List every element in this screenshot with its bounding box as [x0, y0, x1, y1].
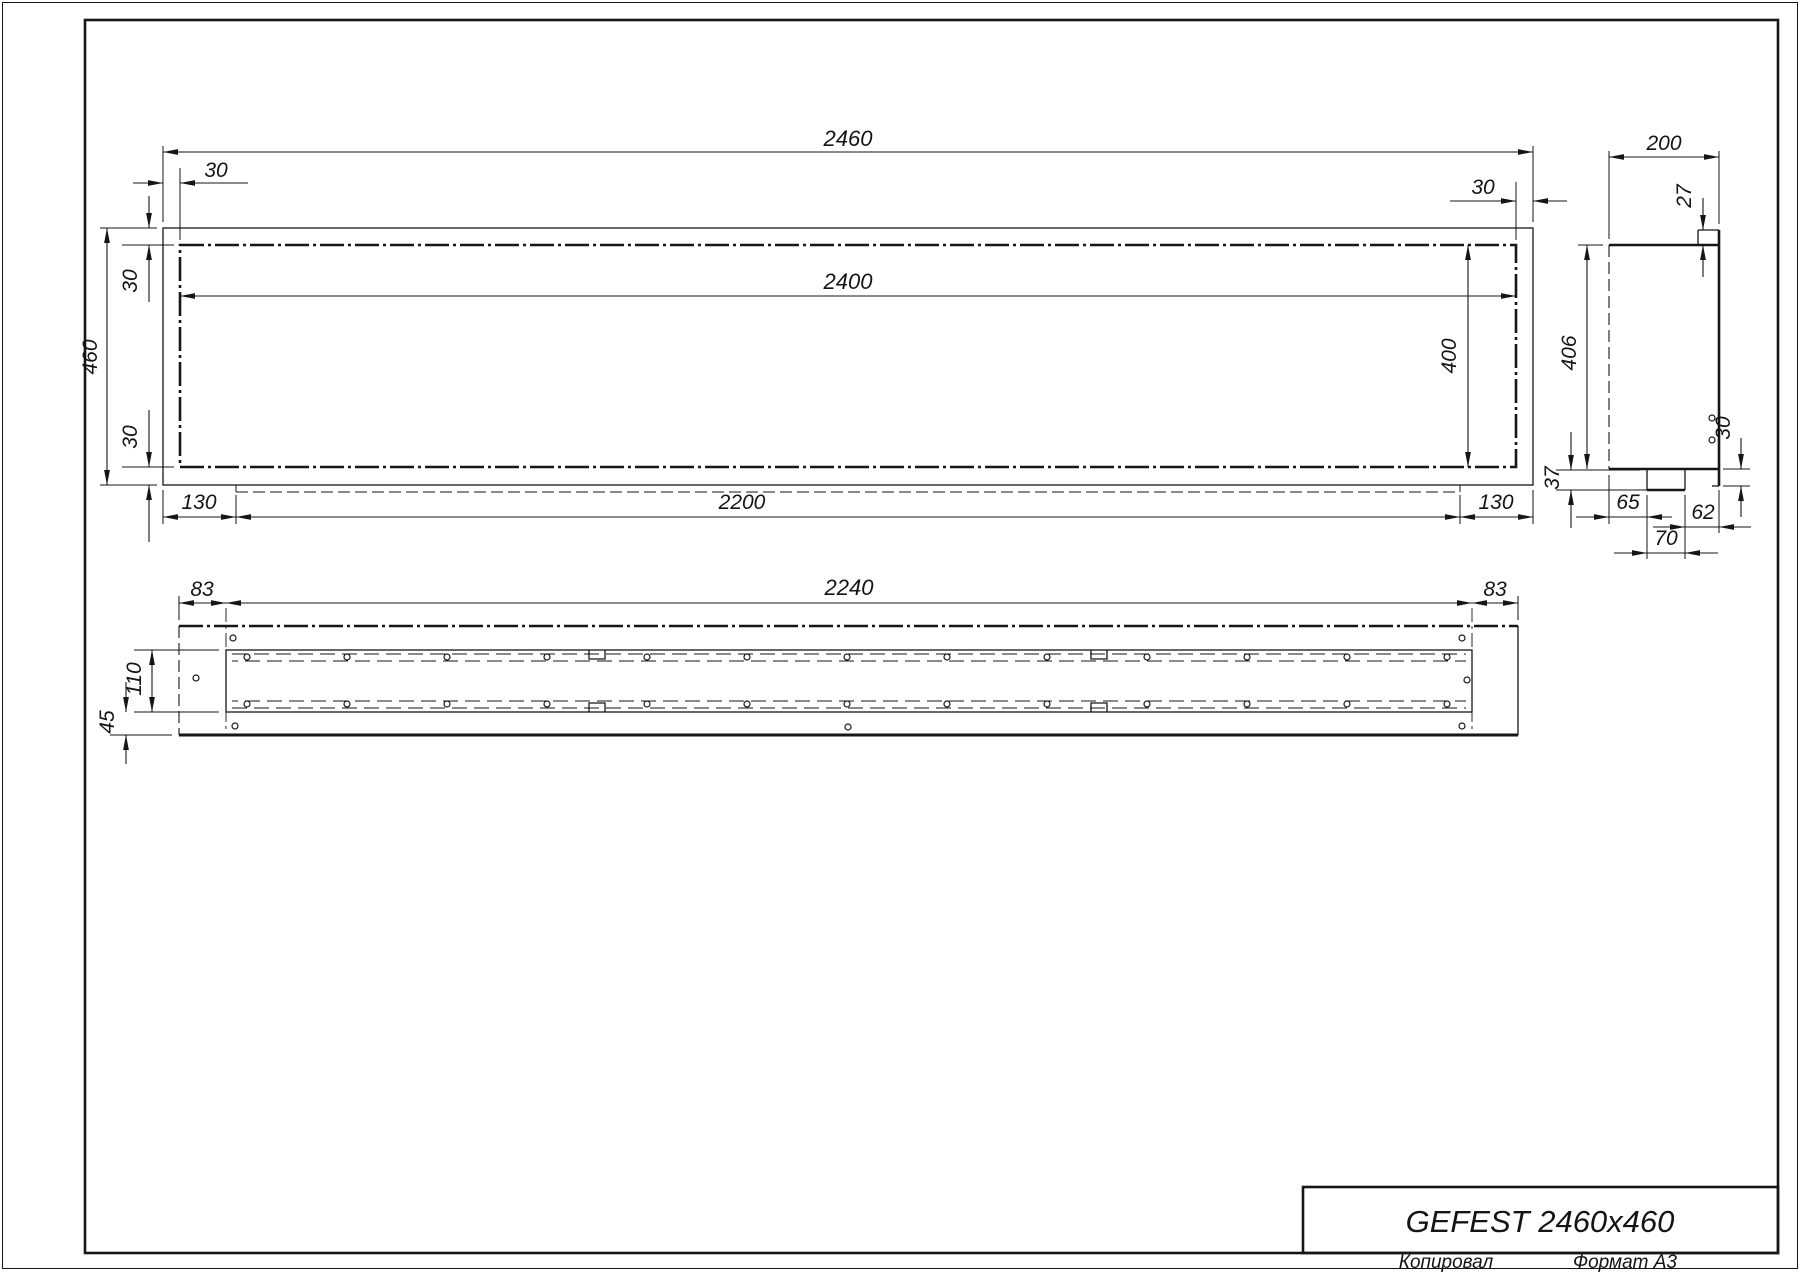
- dim-label-front-opening-height: 400: [1438, 338, 1461, 373]
- dim-label-front-frame-left: 30: [204, 159, 228, 182]
- drawing-sheet: 2460 2400 460 30 30: [0, 0, 1800, 1273]
- dim-label-front-opening-width: 2400: [823, 269, 874, 294]
- dim-bottom-right-margin: 83: [1472, 578, 1518, 620]
- dim-bottom-left-margin: 83: [179, 578, 226, 620]
- dim-label-side-top-lip: 27: [1673, 183, 1696, 209]
- dim-label-bottom-right-margin: 83: [1483, 578, 1507, 601]
- dim-label-side-body-height: 406: [1558, 335, 1581, 370]
- dim-side-notch-width: 70: [1614, 524, 1718, 559]
- drawing-canvas: 2460 2400 460 30 30: [0, 0, 1800, 1273]
- dim-side-body-height: 406: [1556, 245, 1640, 470]
- dim-front-frame-right: 30: [1450, 176, 1567, 240]
- dim-label-front-inset-bottom: 30: [119, 425, 142, 449]
- dim-front-overall-width: 2460: [163, 126, 1533, 222]
- dim-label-bottom-left-margin: 83: [190, 578, 214, 601]
- side-bottom-notch: [1647, 469, 1685, 490]
- dim-label-front-tray-width: 2200: [718, 491, 766, 514]
- dim-front-inset-top: 30: [119, 196, 174, 302]
- dim-side-notch-back-offset: 65: [1576, 475, 1672, 524]
- dim-front-opening-width: 2400: [180, 269, 1516, 296]
- dim-bottom-slot-width: 110: [123, 650, 219, 712]
- dim-label-side-tray-drop: 37: [1541, 465, 1564, 490]
- format-label: Формат А3: [1573, 1252, 1677, 1273]
- copied-label: Копировал: [1399, 1252, 1494, 1273]
- dim-label-side-bottom-lip: 30: [1712, 416, 1735, 440]
- dim-label-side-notch-front-offset: 62: [1691, 501, 1715, 524]
- dim-label-bottom-slot-length: 2240: [824, 575, 875, 600]
- dim-label-side-depth: 200: [1645, 132, 1681, 155]
- bottom-view: 83 2240 83 110 45: [96, 575, 1518, 764]
- title-block: GEFEST 2460x460: [1303, 1187, 1778, 1253]
- paper-edge: [3, 3, 1798, 1269]
- dim-front-tray-width: 2200: [236, 491, 1460, 524]
- dim-front-tray-left: 130: [163, 490, 236, 524]
- sheet-footer: Копировал Формат А3: [1399, 1252, 1678, 1273]
- flange-mount-holes: [193, 635, 1470, 730]
- dim-label-front-overall-width: 2460: [823, 126, 874, 151]
- front-outer-frame: [163, 228, 1533, 485]
- dim-label-front-overall-height: 460: [79, 339, 102, 374]
- dim-label-bottom-edge-offset: 45: [96, 710, 119, 734]
- dim-label-front-tray-left: 130: [181, 491, 216, 514]
- side-view: 200 27 406 37 30: [1541, 132, 1751, 559]
- dim-front-opening-height: 400: [1438, 245, 1468, 467]
- dim-bottom-slot-length: 2240: [226, 575, 1472, 603]
- dim-label-side-notch-back-offset: 65: [1616, 491, 1640, 514]
- dim-front-inset-bottom: 30: [119, 410, 174, 542]
- dim-label-front-frame-right: 30: [1471, 176, 1495, 199]
- front-tray: [236, 485, 1460, 492]
- sheet-frame: [85, 20, 1778, 1253]
- dim-label-front-tray-right: 130: [1478, 491, 1513, 514]
- slot-hidden-flanges: [232, 654, 1466, 708]
- dim-label-front-inset-top: 30: [119, 269, 142, 293]
- dim-front-tray-right: 130: [1460, 490, 1533, 524]
- dim-label-side-notch-width: 70: [1654, 527, 1678, 550]
- dim-front-overall-height: 460: [79, 228, 157, 485]
- product-title: GEFEST 2460x460: [1406, 1204, 1675, 1239]
- slot-screw-holes: [244, 654, 1450, 707]
- front-view: 2460 2400 460 30 30: [79, 126, 1567, 542]
